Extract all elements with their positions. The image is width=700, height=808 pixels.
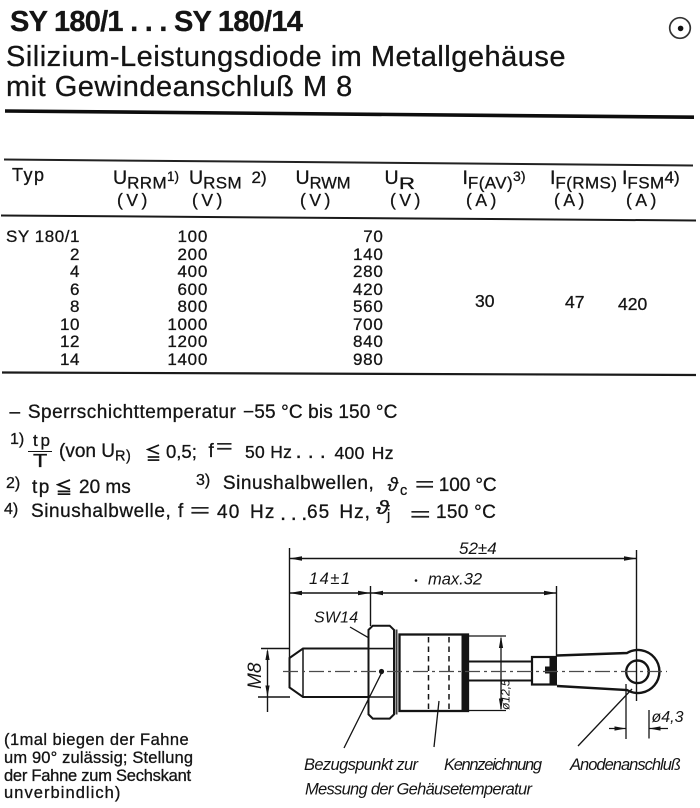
svg-text:ø4,3: ø4,3 bbox=[652, 709, 684, 726]
svg-text:52±4: 52±4 bbox=[459, 539, 497, 558]
svg-text:ø12,5: ø12,5 bbox=[499, 679, 513, 710]
svg-text:14±1: 14±1 bbox=[309, 570, 352, 588]
svg-text:Anodenanschluß: Anodenanschluß bbox=[569, 756, 681, 774]
svg-text:max.32: max.32 bbox=[428, 571, 482, 589]
svg-text:Kennzeichnung: Kennzeichnung bbox=[444, 756, 543, 774]
svg-text:Messung der Gehäusetemperatur: Messung der Gehäusetemperatur bbox=[305, 781, 534, 799]
svg-text:SW14: SW14 bbox=[314, 610, 358, 627]
svg-text:Bezugspunkt zur: Bezugspunkt zur bbox=[304, 756, 420, 774]
svg-text:M8: M8 bbox=[245, 662, 266, 689]
